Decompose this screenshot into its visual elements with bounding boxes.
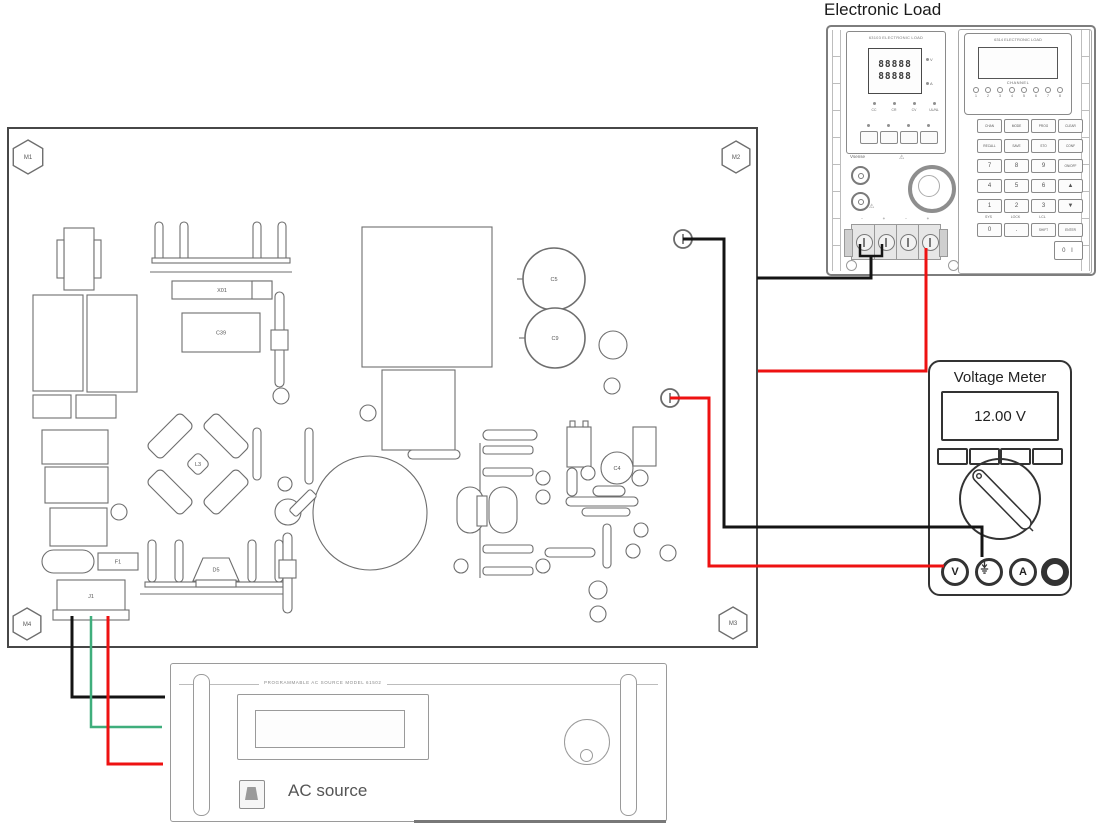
electronic-load-title: Electronic Load [824, 0, 941, 20]
load-terminal-block [851, 224, 941, 260]
pcb-label: C9 [551, 336, 558, 342]
pcb-part [271, 330, 288, 350]
ac-display [255, 710, 405, 748]
rack-rail-left [832, 30, 841, 271]
key-5[interactable]: 5 [1004, 179, 1029, 193]
vsense-label: Vsense [850, 154, 865, 159]
channel-led [1033, 87, 1039, 93]
load-module-display: 88888 88888 [868, 48, 922, 94]
ac-adjust-knob[interactable] [564, 719, 610, 765]
pcb-part [567, 468, 577, 496]
button-led [907, 124, 910, 127]
pcb-part [454, 559, 468, 573]
mode-label: UL/NL [924, 108, 944, 112]
pcb-part [33, 295, 83, 391]
warning-triangle-icon: ⚠ [869, 203, 874, 210]
pcb-part-f1: F1 [98, 553, 138, 570]
mode-led-ulnl [933, 102, 936, 105]
pcb-part [536, 471, 550, 485]
key-3[interactable]: 3 [1031, 199, 1056, 213]
pcb-part [589, 581, 607, 599]
pcb-part [196, 580, 236, 587]
pcb-part [111, 504, 127, 520]
terminal-common-ground[interactable] [975, 558, 1003, 586]
pcb-part [252, 281, 272, 299]
terminal-unused[interactable] [1041, 558, 1069, 586]
mode-led-cr [893, 102, 896, 105]
pcb-part-c9: C9 [525, 308, 585, 368]
key-onoff[interactable]: ON/OFF [1058, 159, 1083, 173]
key-sublabel-lock: LOCK [1004, 215, 1027, 219]
channel-indicator-6: 6 [1031, 87, 1041, 98]
channel-number: 5 [1023, 94, 1025, 98]
channel-number: 7 [1047, 94, 1049, 98]
pcb-part [42, 430, 108, 464]
pcb-part [483, 545, 533, 553]
load-adjust-knob[interactable] [908, 165, 956, 213]
key-sublabel-lcl: LCL [1031, 215, 1054, 219]
ac-source-model: PROGRAMMABLE AC SOURCE MODEL 61502 [259, 680, 387, 685]
pcb-part [536, 490, 550, 504]
mainframe-model: 6314 ELECTRONIC LOAD [965, 37, 1071, 42]
pcb-part [360, 405, 376, 421]
pcb-part [248, 540, 256, 582]
channel-indicator-3: 3 [995, 87, 1005, 98]
pcb-part [581, 466, 595, 480]
pcb-part-j1: J1 [57, 580, 125, 612]
key-2[interactable]: 2 [1004, 199, 1029, 213]
channel-led [1009, 87, 1015, 93]
warning-triangle-icon: ⚠ [899, 154, 904, 161]
pcb-part [660, 545, 676, 561]
pcb-label: J1 [88, 594, 94, 600]
pcb-part [489, 487, 517, 533]
key-recall[interactable]: RECALL [977, 139, 1002, 153]
terminal-block-tab [939, 229, 948, 257]
pcb-part [603, 524, 611, 568]
key-clear[interactable]: CLEAR [1058, 119, 1083, 133]
terminal-polarity-mark: - [856, 216, 868, 221]
pcb-label: C5 [550, 277, 557, 283]
pcb-part [604, 378, 620, 394]
pcb-part [152, 258, 290, 263]
pcb-part [633, 427, 656, 466]
pcb-output-terminal[interactable] [674, 230, 692, 248]
key-[interactable]: . [1004, 223, 1029, 237]
key-[interactable]: ▲ [1058, 179, 1083, 193]
voltage-meter: Voltage Meter 12.00 V VA [928, 360, 1072, 596]
pcb-part [42, 550, 94, 573]
key-mode[interactable]: MODE [1004, 119, 1029, 133]
channel-indicator-7: 7 [1043, 87, 1053, 98]
power-switch[interactable]: 0 I [1054, 241, 1083, 260]
pcb-label: M1 [24, 155, 33, 161]
key-chan[interactable]: CHAN [977, 119, 1002, 133]
pcb-part [76, 395, 116, 418]
pcb-part [382, 370, 455, 450]
pcb-part [148, 540, 156, 582]
pcb-part [570, 421, 575, 427]
load-module-button[interactable] [880, 131, 898, 144]
mode-led-cc [873, 102, 876, 105]
pcb-part [87, 295, 137, 392]
pcb-part [273, 388, 289, 404]
pcb-part-c39: C39 [182, 313, 260, 352]
pcb-label: M3 [729, 621, 738, 627]
pcb-output-terminal[interactable] [661, 389, 679, 407]
pcb-part [64, 228, 94, 290]
pcb-label: M2 [732, 155, 741, 161]
channel-number: 6 [1035, 94, 1037, 98]
amp-led [926, 82, 929, 85]
volt-led [926, 58, 929, 61]
ac-source-label: AC source [288, 781, 367, 801]
ac-source: PROGRAMMABLE AC SOURCE MODEL 61502 AC so… [170, 663, 667, 822]
channel-number: 2 [987, 94, 989, 98]
pcb-part-c5: C5 [523, 248, 585, 310]
pcb-part-m3: M3 [719, 607, 747, 639]
load-module-button[interactable] [920, 131, 938, 144]
channel-number: 8 [1059, 94, 1061, 98]
pcb-part-m4: M4 [13, 608, 41, 640]
pcb-part [593, 486, 625, 496]
vsense-positive-post[interactable] [851, 166, 870, 185]
load-module-button[interactable] [900, 131, 918, 144]
pcb-part [582, 508, 630, 516]
key-conf[interactable]: CONF [1058, 139, 1083, 153]
panel-screw [846, 260, 857, 271]
key-sublabel-sys: SYS [977, 215, 1000, 219]
channel-indicator-4: 4 [1007, 87, 1017, 98]
key-1[interactable]: 1 [977, 199, 1002, 213]
ground-icon [978, 561, 991, 574]
pcb-part [305, 428, 313, 484]
pcb-part [566, 497, 638, 506]
pcb-label: M4 [23, 622, 32, 628]
pcb-part [53, 610, 129, 620]
load-input-terminal[interactable] [922, 234, 939, 251]
volt-unit: V [926, 57, 933, 62]
load-module-button[interactable] [860, 131, 878, 144]
channel-led [997, 87, 1003, 93]
pcb-part [175, 540, 183, 582]
key-6[interactable]: 6 [1031, 179, 1056, 193]
pcb-label: L3 [195, 462, 201, 468]
mainframe-lcd [978, 47, 1058, 79]
channel-number: 4 [1011, 94, 1013, 98]
pcb-part [278, 477, 292, 491]
display-amps: 88888 [878, 72, 912, 82]
pcb-part [408, 450, 460, 459]
channel-label: CHANNEL [965, 80, 1071, 85]
wiring-diagram: M1M2M3M4F1X01C39L3D5J1C5C9C4 Electronic … [0, 0, 1100, 829]
pcb-label: C39 [216, 331, 226, 337]
channel-indicator-2: 2 [983, 87, 993, 98]
pcb-part [50, 508, 107, 546]
button-led [867, 124, 870, 127]
button-led [927, 124, 930, 127]
pcb-part [599, 331, 627, 359]
channel-number: 3 [999, 94, 1001, 98]
pcb-part [155, 222, 163, 262]
pcb-part [483, 446, 533, 454]
key-7[interactable]: 7 [977, 159, 1002, 173]
pcb-part [634, 523, 648, 537]
pcb-part [632, 470, 648, 486]
pcb-part [253, 428, 261, 480]
rack-handle-left [193, 674, 210, 816]
channel-number: 1 [975, 94, 977, 98]
pcb-part [362, 227, 492, 367]
pcb-label: D5 [212, 568, 219, 574]
terminal-polarity-mark: + [878, 216, 890, 221]
key-4[interactable]: 4 [977, 179, 1002, 193]
pcb-part [313, 456, 427, 570]
pcb-part-c4: C4 [601, 452, 633, 484]
mainframe-display-bezel: 6314 ELECTRONIC LOAD CHANNEL 12345678 [964, 33, 1072, 115]
channel-indicator-5: 5 [1019, 87, 1029, 98]
mode-led-cv [913, 102, 916, 105]
key-0[interactable]: 0 [977, 223, 1002, 237]
terminal-polarity-mark: + [922, 216, 934, 221]
pcb-label: F1 [115, 560, 121, 566]
display-volts: 88888 [878, 60, 912, 70]
channel-led [1021, 87, 1027, 93]
pcb-part [279, 560, 296, 578]
pcb-part [94, 240, 101, 278]
load-input-terminal[interactable] [878, 234, 895, 251]
load-module-frame: 63103 ELECTRONIC LOAD 88888 88888 V A CC… [846, 31, 946, 154]
pcb-part [253, 222, 261, 262]
amp-unit: A [926, 81, 933, 86]
electronic-load: 63103 ELECTRONIC LOAD 88888 88888 V A CC… [826, 25, 1096, 276]
vsense-negative-post[interactable] [851, 192, 870, 211]
key-9[interactable]: 9 [1031, 159, 1056, 173]
key-8[interactable]: 8 [1004, 159, 1029, 173]
key-save[interactable]: SAVE [1004, 139, 1029, 153]
button-led [887, 124, 890, 127]
pcb-label: C4 [613, 466, 620, 472]
key-sto[interactable]: STO [1031, 139, 1056, 153]
terminal-volts[interactable]: V [941, 558, 969, 586]
channel-indicator-8: 8 [1055, 87, 1065, 98]
key-[interactable]: ▼ [1058, 199, 1083, 213]
pcb-part [626, 544, 640, 558]
pcb-part [583, 421, 588, 427]
channel-led [1057, 87, 1063, 93]
terminal-amps[interactable]: A [1009, 558, 1037, 586]
load-input-terminal[interactable] [900, 234, 917, 251]
pcb-part [45, 467, 108, 503]
pcb-part [536, 559, 550, 573]
load-module-model: 63103 ELECTRONIC LOAD [847, 35, 945, 40]
pcb-part [477, 496, 487, 526]
load-input-terminal[interactable] [856, 234, 873, 251]
terminal-block-tab [844, 229, 853, 257]
pcb-part [57, 240, 64, 278]
key-shift[interactable]: SHIFT [1031, 223, 1056, 237]
pcb-part [545, 548, 595, 557]
pcb-part [33, 395, 71, 418]
key-enter[interactable]: ENTER [1058, 223, 1083, 237]
pcb-part [483, 430, 537, 440]
mode-label: CC [864, 108, 884, 112]
pcb-part [278, 222, 286, 262]
terminal-polarity-mark: - [900, 216, 912, 221]
channel-led [1045, 87, 1051, 93]
usb-connector-icon [239, 780, 265, 809]
channel-led [985, 87, 991, 93]
rack-handle-right [620, 674, 637, 816]
pcb-part [180, 222, 188, 262]
pcb-part [483, 468, 533, 476]
channel-indicator-1: 1 [971, 87, 981, 98]
pcb-part-m2: M2 [722, 141, 750, 173]
pcb-part [483, 567, 533, 575]
pcb-part [567, 427, 591, 467]
mode-label: CV [904, 108, 924, 112]
pcb-part [590, 606, 606, 622]
mode-label: CR [884, 108, 904, 112]
pcb-label: X01 [217, 288, 227, 294]
key-prog[interactable]: PROG [1031, 119, 1056, 133]
channel-led [973, 87, 979, 93]
